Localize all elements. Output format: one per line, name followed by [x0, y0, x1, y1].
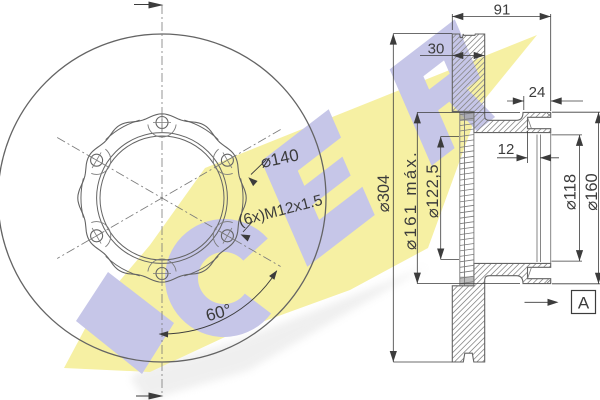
svg-text:30: 30	[428, 41, 445, 58]
svg-text:⌀118: ⌀118	[562, 174, 580, 210]
svg-text:⌀122,5: ⌀122,5	[424, 164, 442, 218]
svg-text:⌀304: ⌀304	[375, 175, 393, 212]
svg-text:24: 24	[529, 84, 546, 101]
svg-text:91: 91	[494, 2, 511, 19]
svg-text:A: A	[578, 294, 590, 313]
svg-text:⌀160: ⌀160	[583, 173, 600, 210]
svg-text:12: 12	[498, 141, 515, 158]
svg-text:⌀161 máx.: ⌀161 máx.	[401, 150, 420, 250]
